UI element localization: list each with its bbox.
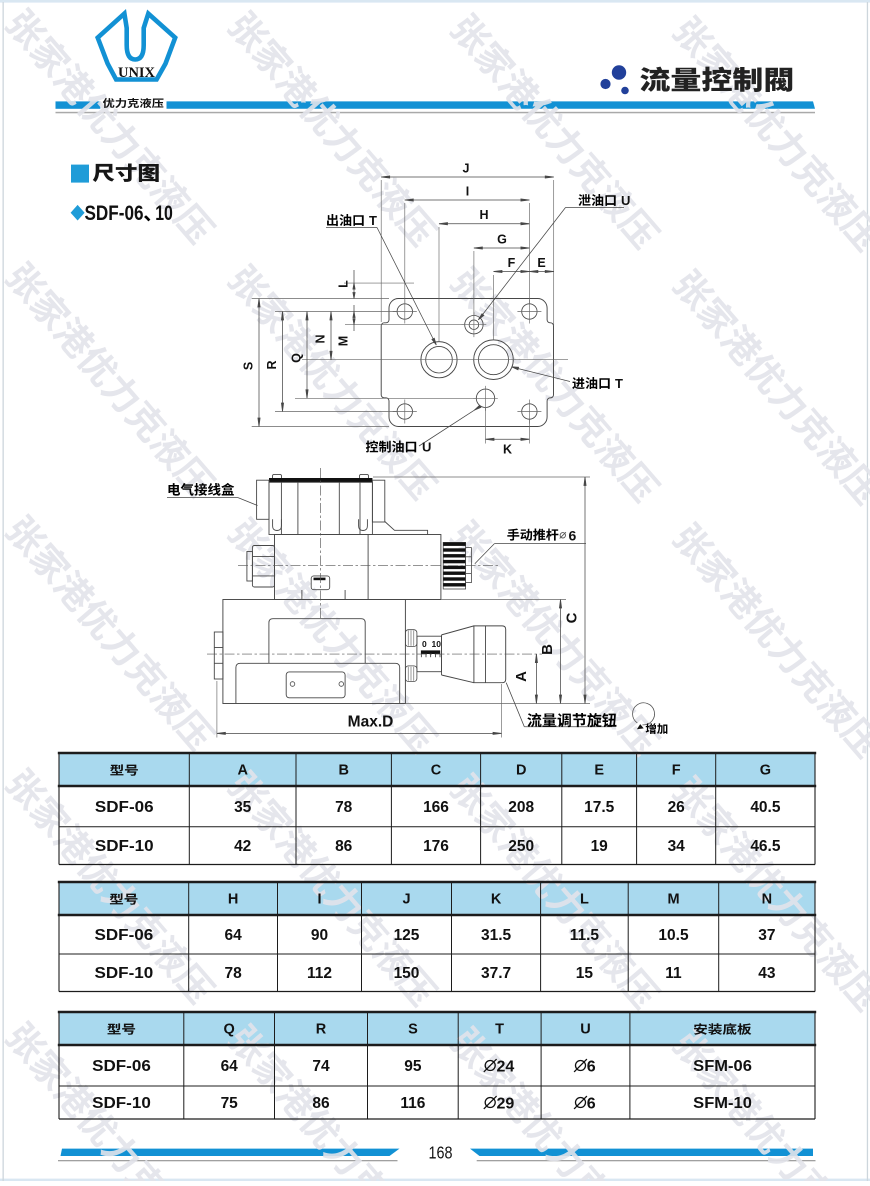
svg-text:SDF-06: SDF-06 (95, 799, 154, 816)
svg-text:N: N (762, 892, 772, 908)
svg-text:T: T (369, 213, 377, 228)
svg-text:J: J (402, 892, 410, 908)
svg-text:86: 86 (335, 838, 353, 855)
svg-text:F: F (672, 763, 681, 779)
svg-text:L: L (580, 892, 589, 908)
svg-text:I: I (466, 185, 469, 199)
svg-text:24: 24 (497, 1058, 515, 1075)
svg-text:34: 34 (668, 838, 686, 855)
svg-text:SDF-10: SDF-10 (95, 965, 154, 982)
svg-text:E: E (594, 763, 604, 779)
svg-text:250: 250 (508, 838, 534, 855)
svg-text:R: R (316, 1022, 327, 1038)
svg-text:C: C (431, 763, 442, 779)
svg-text:42: 42 (234, 838, 251, 855)
svg-text:35: 35 (234, 799, 252, 816)
svg-text:6: 6 (587, 1095, 596, 1112)
svg-text:90: 90 (311, 927, 328, 944)
svg-text:Max.D: Max.D (348, 714, 394, 731)
svg-text:31.5: 31.5 (481, 927, 512, 944)
svg-text:J: J (463, 162, 470, 176)
svg-text:C: C (564, 612, 581, 623)
svg-text:M: M (667, 892, 679, 908)
svg-text:T: T (495, 1022, 504, 1038)
svg-text:208: 208 (508, 799, 534, 816)
svg-text:166: 166 (423, 799, 449, 816)
svg-text:H: H (479, 208, 488, 222)
svg-text:K: K (503, 443, 512, 457)
svg-text:37: 37 (758, 927, 775, 944)
svg-text:19: 19 (591, 838, 609, 855)
svg-text:10: 10 (155, 202, 173, 225)
svg-text:15: 15 (576, 965, 594, 982)
svg-text:43: 43 (758, 965, 776, 982)
svg-text:Q: Q (224, 1022, 235, 1038)
svg-text:125: 125 (394, 927, 420, 944)
svg-text:6: 6 (587, 1058, 596, 1075)
svg-text:6: 6 (569, 528, 577, 544)
svg-text:G: G (760, 763, 771, 779)
svg-text:SDF-06: SDF-06 (85, 202, 144, 225)
svg-text:Q: Q (290, 353, 304, 363)
svg-text:64: 64 (221, 1058, 239, 1075)
svg-text:L: L (337, 280, 351, 288)
svg-text:N: N (314, 334, 328, 343)
svg-text:150: 150 (394, 965, 420, 982)
svg-text:I: I (317, 892, 321, 908)
svg-text:112: 112 (307, 965, 332, 982)
svg-text:U: U (422, 440, 431, 455)
svg-text:UNIX: UNIX (118, 65, 156, 81)
svg-text:SDF-06: SDF-06 (95, 927, 154, 944)
svg-text:D: D (516, 763, 526, 779)
svg-text:168: 168 (429, 1143, 453, 1163)
svg-text:26: 26 (668, 799, 686, 816)
svg-text:T: T (615, 376, 623, 391)
svg-text:R: R (265, 360, 279, 369)
svg-text:75: 75 (221, 1095, 239, 1112)
svg-text:SDF-10: SDF-10 (95, 838, 154, 855)
svg-text:S: S (408, 1022, 418, 1038)
svg-text:10.5: 10.5 (658, 927, 689, 944)
svg-text:U: U (621, 193, 630, 208)
svg-text:74: 74 (312, 1058, 330, 1075)
svg-text:M: M (337, 336, 351, 346)
svg-text:29: 29 (497, 1095, 515, 1112)
svg-text:E: E (537, 256, 545, 270)
svg-text:A: A (237, 763, 248, 779)
svg-text:78: 78 (224, 965, 242, 982)
svg-text:B: B (338, 763, 348, 779)
svg-text:64: 64 (224, 927, 242, 944)
svg-text:37.7: 37.7 (481, 965, 511, 982)
svg-text:SDF-10: SDF-10 (92, 1095, 151, 1112)
svg-text:86: 86 (312, 1095, 330, 1112)
svg-text:SFM-10: SFM-10 (693, 1095, 752, 1112)
svg-text:S: S (242, 362, 256, 370)
svg-text:SDF-06: SDF-06 (92, 1058, 151, 1075)
svg-text:176: 176 (423, 838, 449, 855)
svg-text:B: B (539, 644, 556, 655)
svg-text:0: 0 (422, 639, 427, 649)
svg-text:A: A (513, 671, 530, 682)
svg-text:K: K (491, 892, 502, 908)
svg-text:116: 116 (400, 1095, 425, 1112)
svg-text:40.5: 40.5 (750, 799, 781, 816)
svg-text:H: H (228, 892, 238, 908)
svg-text:11: 11 (665, 965, 682, 982)
svg-text:46.5: 46.5 (750, 838, 781, 855)
svg-text:F: F (508, 256, 516, 270)
svg-text:95: 95 (404, 1058, 422, 1075)
svg-text:SFM-06: SFM-06 (693, 1058, 752, 1075)
svg-text:78: 78 (335, 799, 353, 816)
svg-text:G: G (497, 233, 507, 247)
svg-text:11.5: 11.5 (570, 927, 600, 944)
svg-text:U: U (580, 1022, 590, 1038)
svg-text:17.5: 17.5 (584, 799, 615, 816)
svg-text:10: 10 (432, 639, 442, 649)
